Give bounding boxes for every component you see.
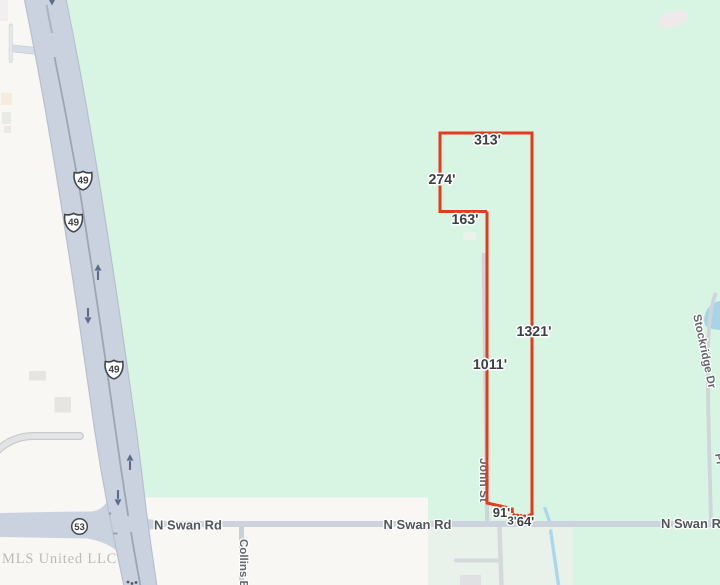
svg-text:64': 64' bbox=[517, 514, 535, 529]
svg-text:313': 313' bbox=[474, 133, 501, 149]
svg-text:John St: John St bbox=[477, 458, 491, 502]
svg-text:N Swan Rd: N Swan Rd bbox=[154, 518, 222, 533]
svg-text:53: 53 bbox=[74, 522, 85, 533]
svg-text:163': 163' bbox=[451, 212, 478, 228]
svg-text:1011': 1011' bbox=[473, 357, 507, 373]
svg-text:49: 49 bbox=[77, 176, 89, 187]
svg-text:MLS United LLC: MLS United LLC bbox=[2, 551, 117, 567]
svg-text:3': 3' bbox=[507, 516, 516, 528]
svg-text:Collins Blvd: Collins Blvd bbox=[237, 539, 249, 585]
svg-text:1321': 1321' bbox=[517, 324, 552, 340]
svg-text:49: 49 bbox=[68, 218, 80, 229]
svg-text:274': 274' bbox=[428, 172, 455, 188]
svg-text:N Swan Rd: N Swan Rd bbox=[661, 516, 720, 531]
svg-text:N Swan Rd: N Swan Rd bbox=[384, 517, 452, 532]
svg-text:49: 49 bbox=[108, 365, 120, 376]
